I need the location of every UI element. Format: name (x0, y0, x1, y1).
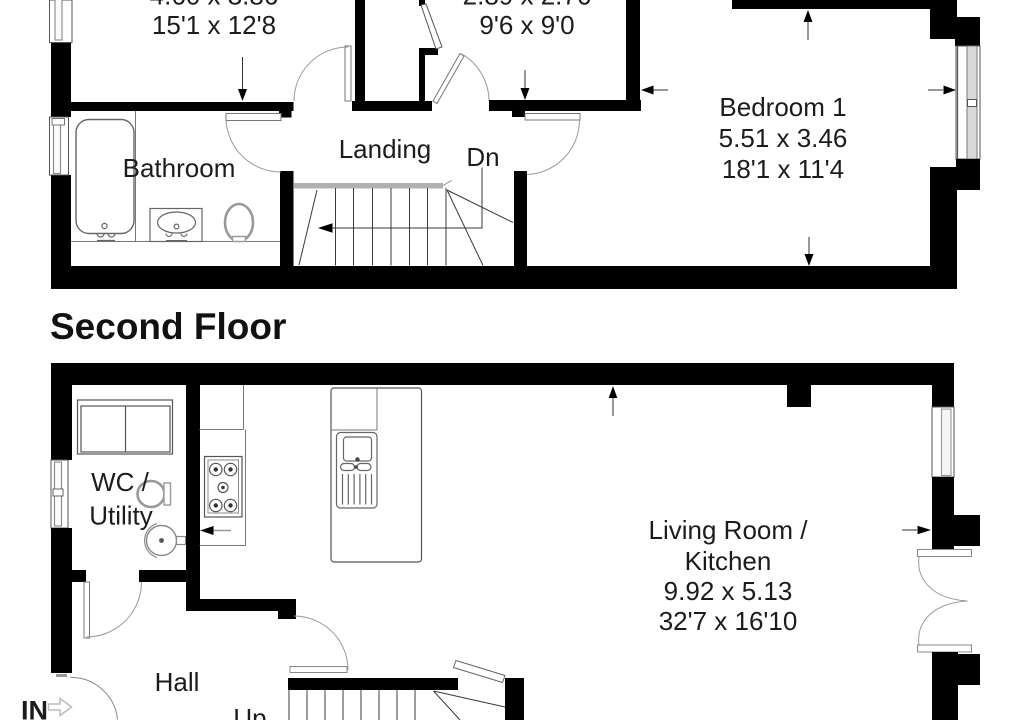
svg-text:Living Room /: Living Room / (649, 515, 809, 545)
svg-text:32'7 x 16'10: 32'7 x 16'10 (659, 606, 798, 636)
svg-text:5.51 x 3.46: 5.51 x 3.46 (719, 123, 848, 153)
svg-text:Up: Up (233, 703, 266, 720)
svg-text:IN: IN (21, 696, 48, 720)
svg-text:Bedroom 1: Bedroom 1 (719, 92, 846, 122)
svg-text:Utility: Utility (89, 501, 153, 531)
svg-text:Landing: Landing (339, 134, 432, 164)
svg-text:9.92 x 5.13: 9.92 x 5.13 (664, 576, 793, 606)
svg-text:4.60 x 3.86: 4.60 x 3.86 (150, 0, 279, 11)
svg-text:WC /: WC / (91, 467, 150, 497)
svg-text:18'1 x 11'4: 18'1 x 11'4 (722, 154, 844, 184)
svg-text:Bathroom: Bathroom (123, 153, 236, 183)
svg-text:Dn: Dn (466, 142, 499, 172)
svg-text:15'1 x 12'8: 15'1 x 12'8 (152, 10, 276, 40)
svg-text:Second Floor: Second Floor (50, 306, 286, 347)
svg-text:2.89 x 2.76: 2.89 x 2.76 (463, 0, 592, 11)
svg-text:9'6 x 9'0: 9'6 x 9'0 (479, 10, 574, 40)
svg-text:Kitchen: Kitchen (685, 546, 772, 576)
svg-text:Hall: Hall (155, 667, 200, 697)
